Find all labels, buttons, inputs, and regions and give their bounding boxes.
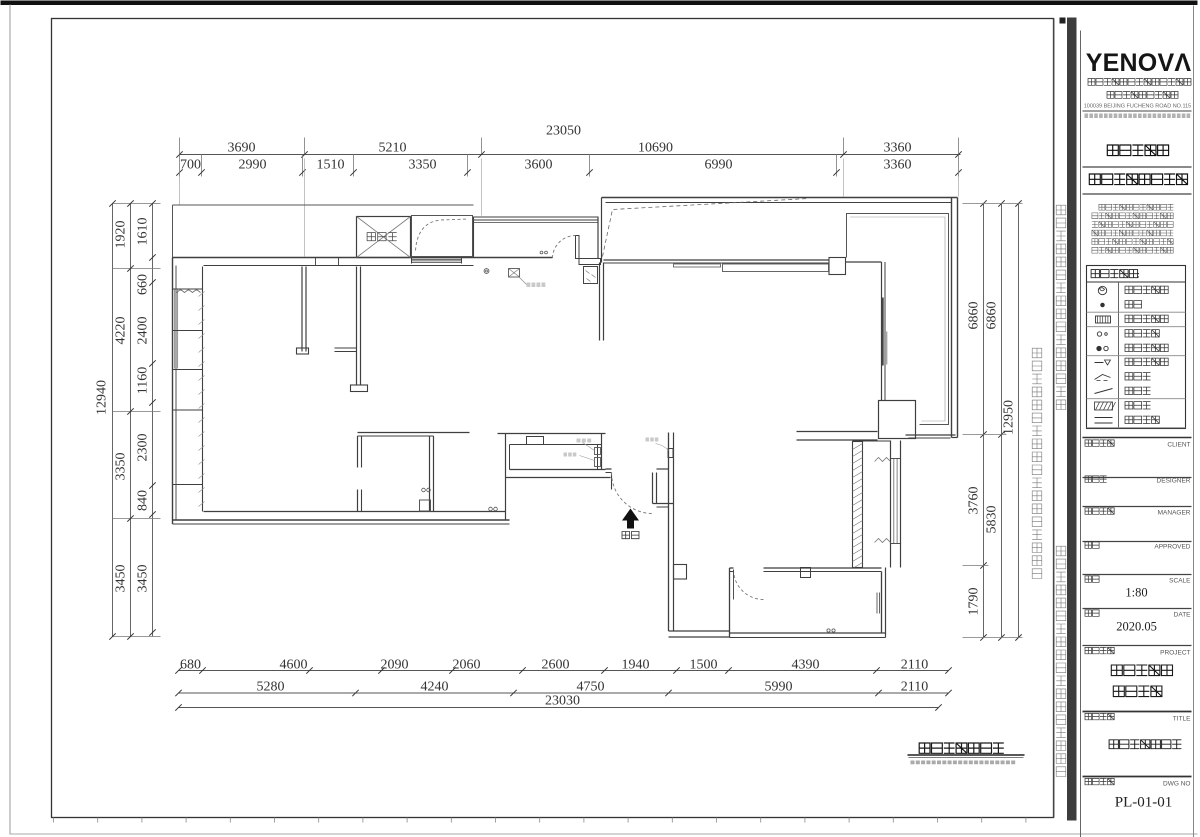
svg-text:2400: 2400 <box>136 317 151 345</box>
svg-text:3690: 3690 <box>228 141 256 156</box>
svg-text:1790: 1790 <box>967 588 982 616</box>
svg-text:PROJECT: PROJECT <box>1160 650 1190 657</box>
svg-text:2990: 2990 <box>239 158 267 173</box>
svg-text:2300: 2300 <box>136 434 151 462</box>
svg-text:660: 660 <box>136 274 151 295</box>
svg-text:PL-01-01: PL-01-01 <box>1115 795 1173 811</box>
svg-text:2110: 2110 <box>901 680 928 695</box>
svg-text:2060: 2060 <box>453 658 481 673</box>
svg-text:3350: 3350 <box>409 158 437 173</box>
svg-text:DWG NO: DWG NO <box>1163 781 1190 788</box>
svg-text:4220: 4220 <box>114 317 129 345</box>
svg-text:5280: 5280 <box>257 680 285 695</box>
svg-text:700: 700 <box>180 158 201 173</box>
svg-text:2110: 2110 <box>901 658 928 673</box>
svg-text:DATE: DATE <box>1174 612 1192 619</box>
svg-text:840: 840 <box>136 490 151 511</box>
svg-text:2090: 2090 <box>381 658 409 673</box>
svg-text:4390: 4390 <box>792 658 820 673</box>
svg-text:5210: 5210 <box>379 141 407 156</box>
svg-text:6860: 6860 <box>967 302 982 330</box>
svg-text:DESIGNER: DESIGNER <box>1157 478 1191 485</box>
svg-text:6860: 6860 <box>985 302 1000 330</box>
svg-text:3350: 3350 <box>114 453 129 481</box>
svg-text:2020.05: 2020.05 <box>1116 620 1157 634</box>
svg-text:680: 680 <box>180 658 201 673</box>
svg-text:1510: 1510 <box>317 158 345 173</box>
svg-text:1500: 1500 <box>690 658 718 673</box>
svg-text:1940: 1940 <box>622 658 650 673</box>
svg-text:100039 BEIJING FUCHENG ROAD NO: 100039 BEIJING FUCHENG ROAD NO.115 <box>1084 104 1192 110</box>
svg-text:3760: 3760 <box>967 487 982 515</box>
svg-text:MANAGER: MANAGER <box>1158 510 1191 517</box>
svg-text:2600: 2600 <box>542 658 570 673</box>
svg-text:3600: 3600 <box>525 158 553 173</box>
svg-text:4600: 4600 <box>280 658 308 673</box>
svg-text:CLIENT: CLIENT <box>1167 442 1190 449</box>
svg-text:APPROVED: APPROVED <box>1154 544 1190 551</box>
svg-text:4750: 4750 <box>577 680 605 695</box>
svg-text:1160: 1160 <box>136 367 151 394</box>
svg-text:1610: 1610 <box>136 218 151 246</box>
svg-text:1920: 1920 <box>114 221 129 249</box>
svg-text:12950: 12950 <box>1002 400 1017 435</box>
svg-text:23050: 23050 <box>546 124 581 139</box>
svg-text::: : <box>1137 270 1140 280</box>
svg-text:3450: 3450 <box>136 565 151 593</box>
svg-text:23030: 23030 <box>545 694 580 709</box>
svg-text:YENOVΛ: YENOVΛ <box>1086 49 1192 77</box>
svg-text:6990: 6990 <box>705 158 733 173</box>
svg-text:1:80: 1:80 <box>1125 586 1147 600</box>
svg-text:TITLE: TITLE <box>1173 716 1191 723</box>
svg-text:10690: 10690 <box>638 141 673 156</box>
svg-text:5830: 5830 <box>985 506 1000 534</box>
svg-text:5990: 5990 <box>765 680 793 695</box>
svg-text:3360: 3360 <box>884 141 912 156</box>
svg-text:12940: 12940 <box>95 380 110 415</box>
svg-text:3450: 3450 <box>114 565 129 593</box>
svg-text:4240: 4240 <box>421 680 449 695</box>
svg-text:SCALE: SCALE <box>1169 578 1191 585</box>
svg-text:3360: 3360 <box>884 158 912 173</box>
